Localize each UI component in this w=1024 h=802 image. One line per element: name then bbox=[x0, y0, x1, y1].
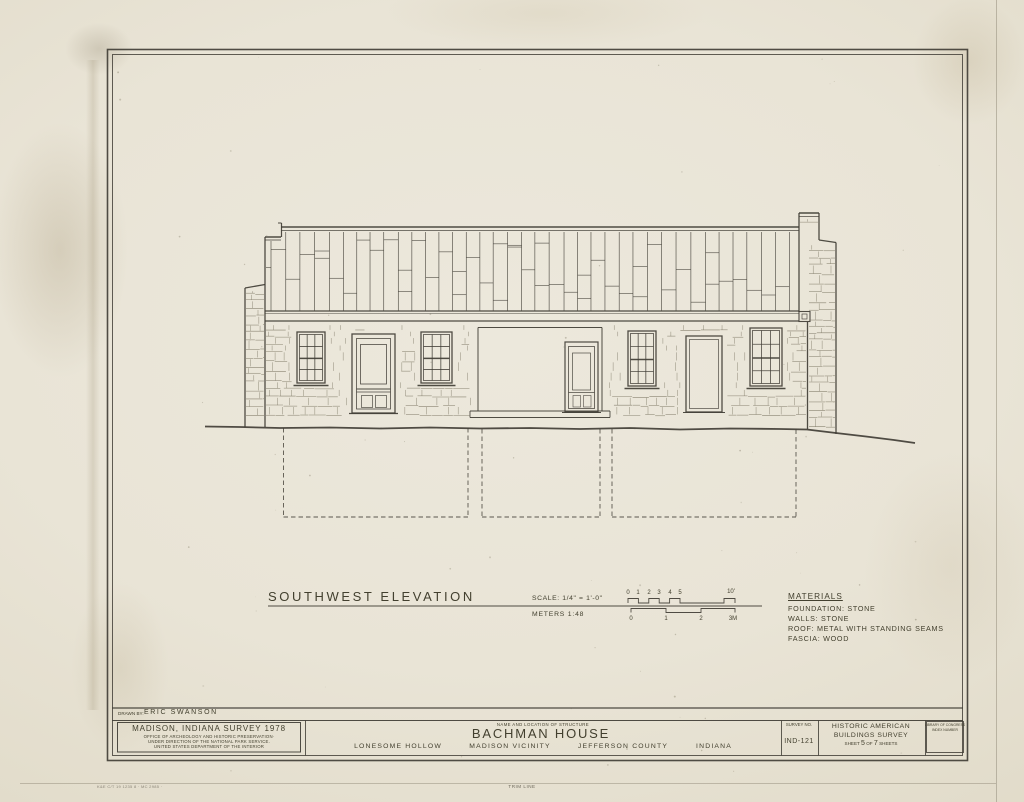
office-line: UNITED STATES DEPARTMENT OF THE INTERIOR bbox=[154, 744, 264, 749]
feet-tick-label: 2 bbox=[647, 590, 650, 596]
feet-tick-label: 0 bbox=[626, 590, 629, 596]
survey-no-label: SURVEY NO. bbox=[786, 722, 812, 727]
location-hollow: LONESOME HOLLOW bbox=[354, 743, 442, 750]
materials-item: FASCIA: WOOD bbox=[788, 634, 849, 643]
materials-item: FOUNDATION: STONE bbox=[788, 604, 876, 613]
feet-scale-end-label: 10' bbox=[727, 589, 735, 595]
trim-line-label: TRIM LINE bbox=[508, 784, 535, 789]
materials-item: ROOF: METAL WITH STANDING SEAMS bbox=[788, 624, 944, 633]
feet-tick-label: 5 bbox=[678, 590, 681, 596]
habs-drawing-sheet: SOUTHWEST ELEVATION SCALE: 1/4" = 1'-0" … bbox=[0, 0, 1024, 802]
library-of-congress-line1: LIBRARY OF CONGRESS bbox=[925, 723, 965, 727]
survey-no-value: IND-121 bbox=[784, 738, 814, 745]
habs-line2: BUILDINGS SURVEY bbox=[834, 732, 908, 739]
sheet-number: 5 bbox=[861, 740, 865, 747]
meter-tick-label: 2 bbox=[699, 616, 702, 622]
drawing-title: SOUTHWEST ELEVATION bbox=[268, 589, 475, 604]
sheet-number-line: SHEET 5 OF 7 SHEETS bbox=[845, 740, 898, 747]
manufacturer-stamp: K&E C/T 19 1235 8 · MC 2985 · bbox=[97, 784, 162, 789]
location-county: JEFFERSON COUNTY bbox=[578, 743, 668, 750]
feet-tick-label: 4 bbox=[668, 590, 671, 596]
meters-label: METERS 1:48 bbox=[532, 611, 584, 618]
elevation-drawing-svg bbox=[0, 0, 1024, 802]
scale-label: SCALE: 1/4" = 1'-0" bbox=[532, 595, 603, 602]
meter-tick-label: 1 bbox=[664, 616, 667, 622]
of-word: OF bbox=[866, 741, 872, 746]
habs-line1: HISTORIC AMERICAN bbox=[832, 723, 910, 730]
location-vicinity: MADISON VICINITY bbox=[469, 743, 551, 750]
sheet-total: 7 bbox=[874, 740, 878, 747]
location-state: INDIANA bbox=[696, 743, 732, 750]
drawn-by-label: DRAWN BY: bbox=[118, 711, 144, 716]
survey-title: MADISON, INDIANA SURVEY 1978 bbox=[132, 724, 286, 733]
structure-name: BACHMAN HOUSE bbox=[472, 726, 610, 741]
feet-tick-label: 1 bbox=[636, 590, 639, 596]
materials-item: WALLS: STONE bbox=[788, 614, 849, 623]
drawn-by-name: ERIC SWANSON bbox=[144, 709, 218, 716]
meter-tick-label: 0 bbox=[629, 616, 632, 622]
sheet-word: SHEET bbox=[845, 741, 860, 746]
materials-heading: MATERIALS bbox=[788, 592, 843, 601]
feet-tick-label: 3 bbox=[657, 590, 660, 596]
library-of-congress-line2: INDEX NUMBER bbox=[932, 728, 958, 732]
sheets-word: SHEETS bbox=[879, 741, 897, 746]
meter-tick-label: 3M bbox=[729, 616, 737, 622]
